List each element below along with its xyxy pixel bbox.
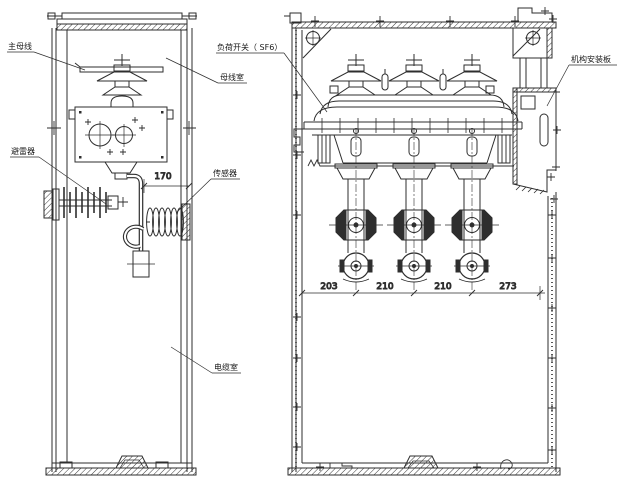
insulator-dome <box>111 96 133 107</box>
busbar-insulator <box>97 54 147 95</box>
front-cabinet-base <box>288 456 560 475</box>
label-mechanism-plate: 机构安装板 <box>571 54 611 64</box>
top-right-bracket <box>518 8 552 22</box>
switch-mechanism-box <box>47 107 196 162</box>
label-busbar-compartment: 母线室 <box>220 72 244 82</box>
tank-insulator-2 <box>389 54 439 95</box>
plate-slot <box>540 114 548 146</box>
mechanism-mounting-plate <box>513 88 561 203</box>
dim-210b-text: 210 <box>434 282 451 292</box>
drawing-canvas: 170 <box>0 0 640 481</box>
sensor-spring <box>146 204 190 240</box>
label-surge-arrester: 避雷器 <box>11 146 35 156</box>
dim-273-text: 273 <box>499 282 516 292</box>
mechanism-box-top <box>513 28 552 88</box>
label-main-busbar: 主母线 <box>8 41 32 51</box>
side-view: 170 <box>44 13 197 475</box>
label-load-switch-sf6: 负荷开关（ SF6） <box>217 42 282 52</box>
dim-170-text: 170 <box>154 172 171 182</box>
cable-bushing-1 <box>329 128 383 292</box>
label-sensor: 传感器 <box>213 168 237 178</box>
switchgear-drawing: 170 <box>0 0 640 481</box>
sf6-tank <box>294 95 522 166</box>
cable-bushing-2 <box>387 128 441 292</box>
side-top-cover <box>47 13 197 30</box>
label-cable-compartment: 电缆室 <box>214 362 238 372</box>
front-view: 203 210 210 273 <box>284 7 561 475</box>
front-top-rail <box>284 7 557 28</box>
dim-203-text: 203 <box>320 282 337 292</box>
tank-insulator-3 <box>447 54 497 95</box>
dimension-170: 170 <box>141 172 192 193</box>
cable-conductor <box>125 176 155 277</box>
dim-210a-text: 210 <box>376 282 393 292</box>
plate-square-hole <box>521 96 535 109</box>
dimension-row: 203 210 210 273 <box>299 282 545 300</box>
side-cabinet-base <box>46 456 196 475</box>
surge-arrester <box>44 187 128 220</box>
cable-bushing-3 <box>445 128 499 292</box>
corner-gusset-left <box>303 29 331 58</box>
